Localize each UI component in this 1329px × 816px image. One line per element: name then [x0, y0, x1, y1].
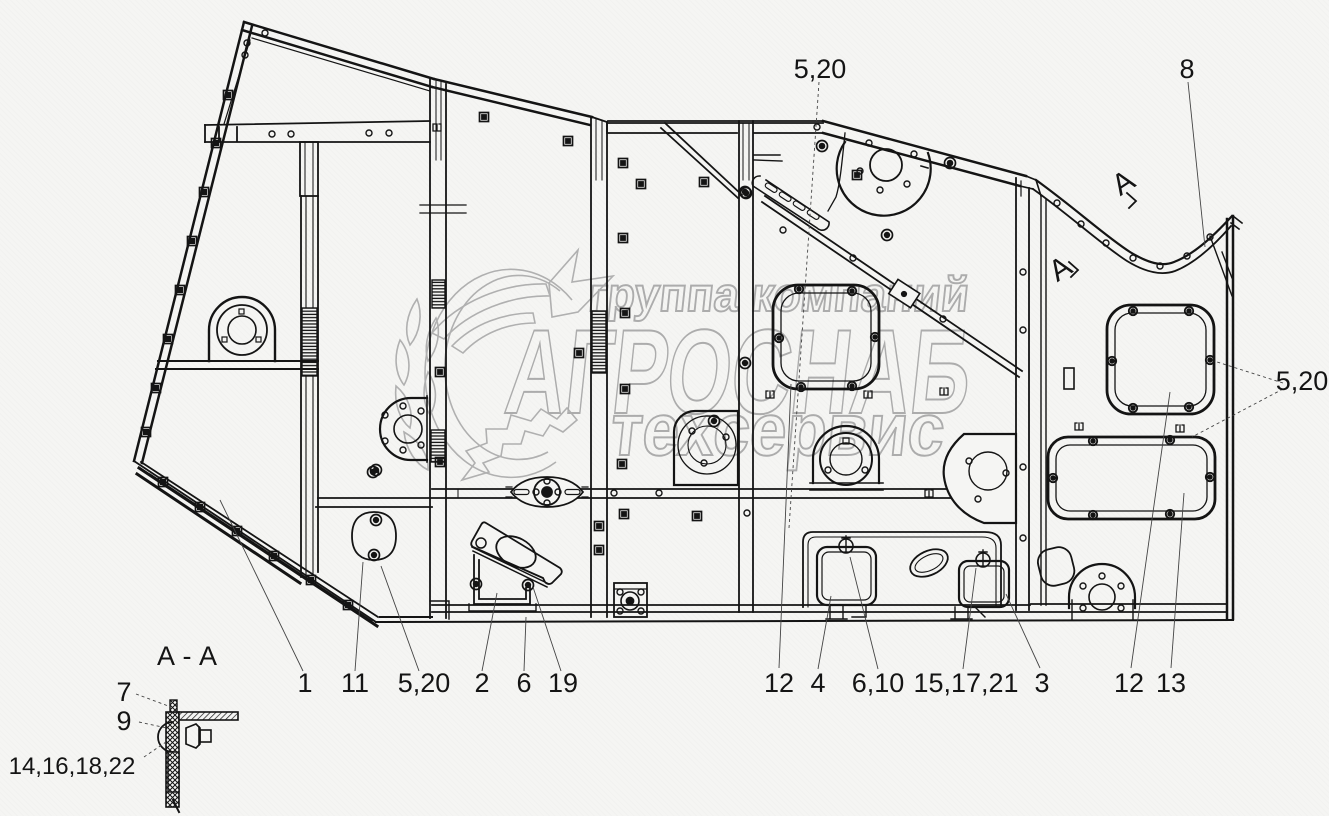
svg-text:A: A [1106, 164, 1141, 203]
svg-text:А - А: А - А [157, 641, 217, 671]
svg-text:6: 6 [516, 668, 531, 698]
svg-text:8: 8 [1179, 54, 1194, 84]
svg-text:5,20: 5,20 [398, 668, 451, 698]
svg-text:7: 7 [116, 677, 131, 707]
svg-text:14,16,18,22: 14,16,18,22 [9, 753, 136, 780]
svg-text:19: 19 [548, 668, 578, 698]
svg-text:5,20: 5,20 [1276, 366, 1329, 396]
svg-text:12: 12 [764, 668, 794, 698]
svg-text:1: 1 [297, 668, 312, 698]
svg-text:3: 3 [1034, 668, 1049, 698]
svg-text:9: 9 [116, 706, 131, 736]
svg-text:13: 13 [1156, 668, 1186, 698]
svg-text:11: 11 [341, 668, 369, 698]
svg-text:техсервис: техсервис [607, 388, 950, 471]
svg-text:A: A [1043, 250, 1078, 289]
svg-text:12: 12 [1114, 668, 1144, 698]
svg-text:6,10: 6,10 [852, 668, 905, 698]
svg-text:4: 4 [810, 668, 825, 698]
svg-text:5,20: 5,20 [794, 54, 847, 84]
svg-text:15,17,21: 15,17,21 [913, 668, 1018, 698]
svg-text:2: 2 [474, 668, 489, 698]
